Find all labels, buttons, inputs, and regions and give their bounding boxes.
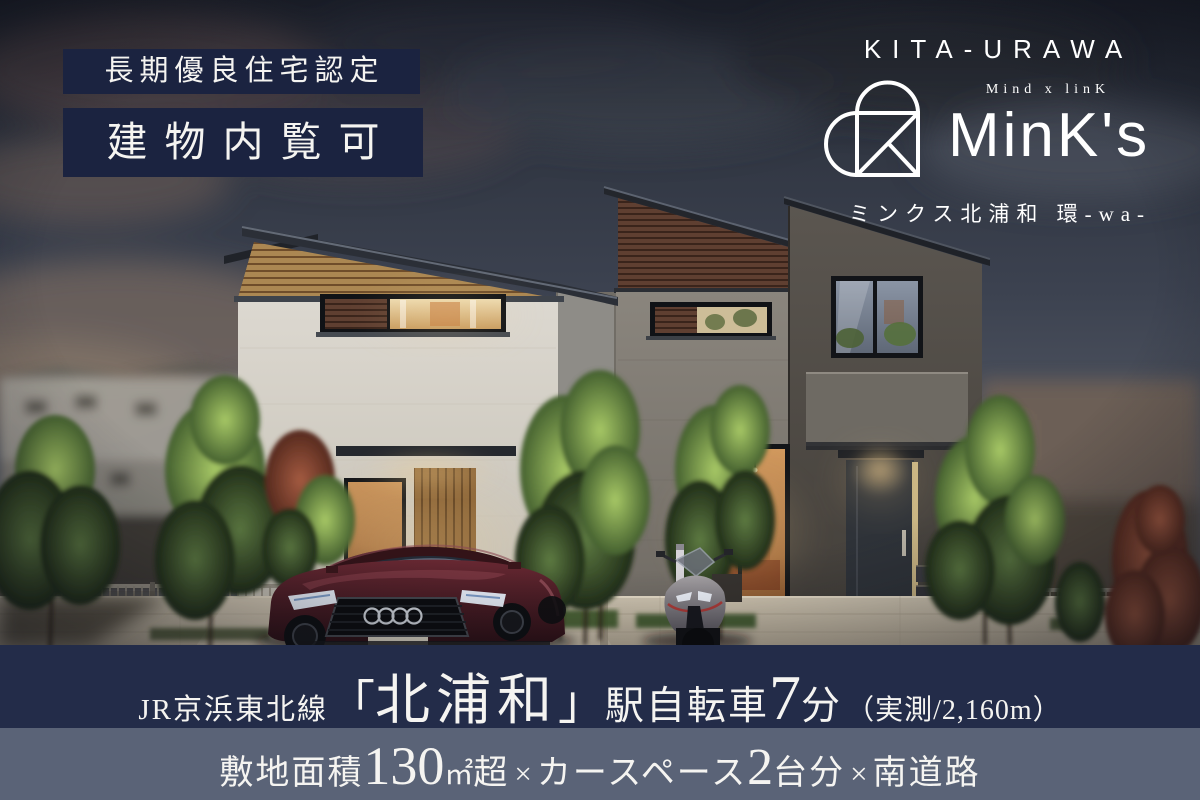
- access-distance-note: （実測/2,160m）: [846, 688, 1062, 728]
- multiply-sign-1: ×: [514, 756, 531, 792]
- rail-line-label: JR京浜東北線: [138, 686, 328, 728]
- access-info-bar: JR京浜東北線「北浦和」駅自転車7分（実測/2,160m）: [0, 645, 1200, 728]
- land-area-suffix: 超: [473, 745, 509, 794]
- road-facing-label: 南道路: [873, 745, 981, 794]
- certification-badge: 長期優良住宅認定: [63, 49, 420, 94]
- property-ad-banner: 長期優良住宅認定 建物内覧可 KITA-URAWA Mind x linK Mi…: [0, 0, 1200, 800]
- logo-area-name: KITA-URAWA: [845, 34, 1141, 65]
- logo-tagline: Mind x linK: [950, 82, 1146, 98]
- access-minutes: 7: [769, 661, 801, 735]
- heart-logo-icon: [823, 75, 935, 179]
- viewing-badge: 建物内覧可: [63, 108, 423, 177]
- car-space-value: 2: [747, 738, 773, 797]
- logo-japanese-name: ミンクス北浦和 環-wa-: [828, 198, 1172, 228]
- bracket-open: 「: [328, 664, 375, 733]
- logo-brand-name: MinK's: [948, 100, 1198, 171]
- land-area-label: 敷地面積: [219, 745, 363, 794]
- access-mode-label: 駅自転車: [605, 675, 769, 731]
- car-space-label: カースペース: [537, 745, 747, 794]
- car-space-unit: 台分: [773, 745, 845, 794]
- land-area-unit: ㎡: [444, 751, 473, 793]
- land-area-value: 130: [363, 735, 444, 797]
- bracket-close: 」: [558, 664, 605, 733]
- multiply-sign-2: ×: [850, 756, 867, 792]
- feature-info-bar: 敷地面積130㎡超×カースペース2台分×南道路: [0, 728, 1200, 800]
- station-name: 北浦和: [375, 655, 558, 735]
- access-minutes-unit: 分: [801, 675, 840, 731]
